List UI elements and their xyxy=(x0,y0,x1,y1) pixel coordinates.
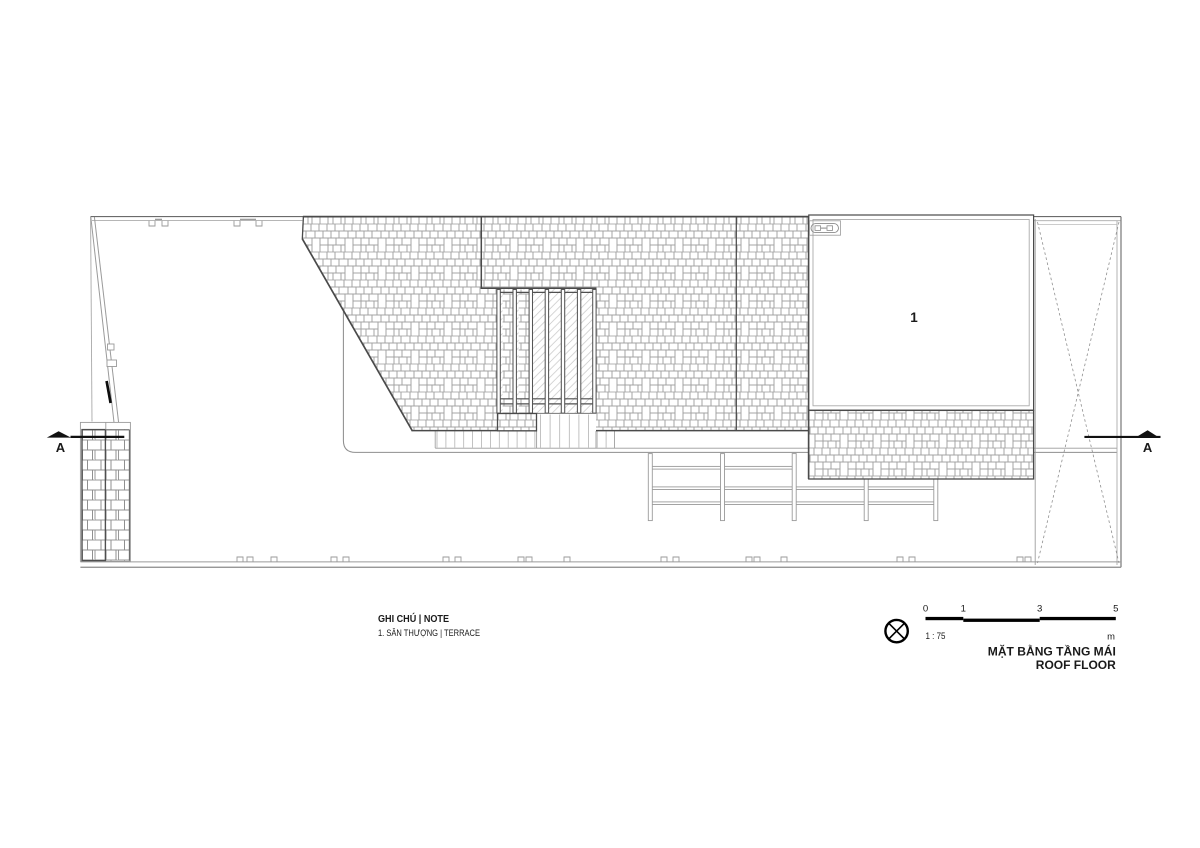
svg-text:MẶT BẰNG TẦNG MÁI: MẶT BẰNG TẦNG MÁI xyxy=(988,644,1116,659)
svg-text:1: 1 xyxy=(910,310,918,325)
svg-text:ROOF FLOOR: ROOF FLOOR xyxy=(1036,658,1116,672)
svg-text:3: 3 xyxy=(1037,604,1042,615)
svg-text:A: A xyxy=(56,440,66,455)
svg-text:A: A xyxy=(1143,440,1153,455)
svg-text:GHI CHÚ | NOTE: GHI CHÚ | NOTE xyxy=(378,612,449,625)
svg-text:0: 0 xyxy=(923,604,928,615)
svg-text:m: m xyxy=(1107,631,1115,642)
svg-text:1 : 75: 1 : 75 xyxy=(926,631,946,641)
svg-text:1: 1 xyxy=(961,604,966,615)
svg-text:5: 5 xyxy=(1113,604,1118,615)
svg-text:1. SÂN THƯỢNG | TERRACE: 1. SÂN THƯỢNG | TERRACE xyxy=(378,628,480,638)
